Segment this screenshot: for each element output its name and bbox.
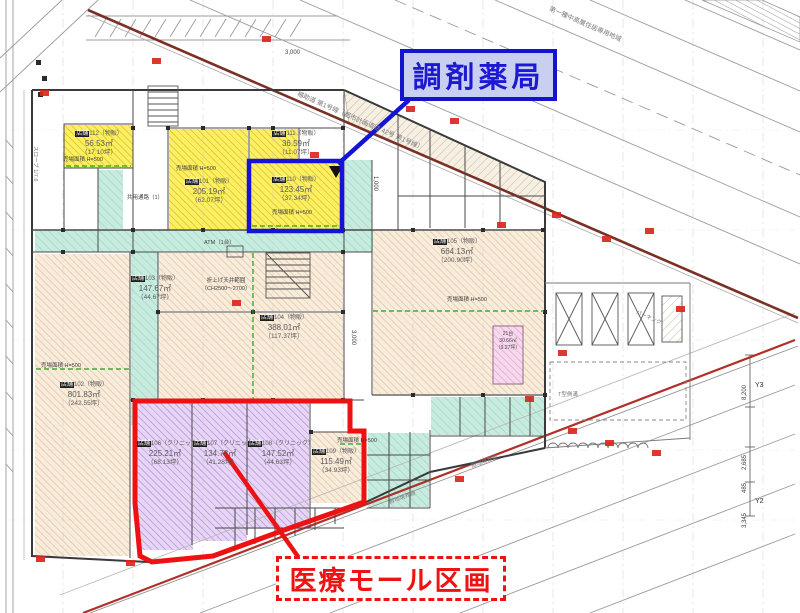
zone-store-103: [159, 253, 343, 311]
zone-backrooms-east: [431, 397, 544, 435]
medical-mall-callout: 医療モール区画: [276, 556, 506, 601]
dim-8200: 8,200: [742, 385, 748, 400]
red-tag: [552, 212, 561, 218]
red-tag: [406, 106, 415, 112]
red-tag: [605, 440, 614, 446]
red-tag: [126, 560, 135, 566]
dim-3000-top: 3,000: [285, 50, 300, 56]
dim-3345: 3,345: [742, 513, 748, 528]
corridor-note: 共用通路（1）: [127, 193, 163, 201]
dim-3000-mid: 3,000: [350, 330, 356, 345]
red-tag: [262, 36, 271, 42]
gridline-y2-label: Y2: [755, 498, 764, 505]
zone-store-101: [169, 129, 248, 229]
red-tag: [602, 236, 611, 242]
red-tag: [525, 396, 534, 402]
parking-note: パーキング: [635, 308, 663, 326]
red-tag: [497, 222, 506, 228]
boundary-note: 敷地境界線: [470, 453, 499, 470]
red-tag: [36, 556, 45, 562]
zone-store-112: [64, 125, 133, 168]
dim-1000: 1,000: [372, 176, 378, 191]
pharmacy-callout: 調剤薬局: [400, 49, 557, 101]
zone-store-106-clinic: [137, 403, 193, 550]
red-tag: [310, 152, 319, 158]
zone-corridor-entrance: [345, 160, 372, 230]
red-tag: [676, 306, 685, 312]
zone-backrooms-south: [368, 433, 429, 507]
red-tag: [558, 350, 567, 356]
site-floor-plan: 店舗112（物販） 56.53㎡ （17.10坪） 店舗101（物販） 205.…: [0, 0, 800, 613]
zone-store-104: [159, 313, 343, 399]
red-tag: [450, 118, 459, 124]
red-tag: [568, 428, 577, 434]
dim-485: 485: [742, 483, 748, 493]
zone-bike-storage: [493, 326, 523, 384]
zone-corridor-vertical: [131, 252, 158, 425]
red-tag: [232, 300, 241, 306]
gutter-note: T型側溝: [558, 390, 578, 398]
zone-corridor-horizontal: [35, 230, 373, 252]
red-tag: [652, 450, 661, 456]
red-tag: [455, 476, 464, 482]
red-tag: [152, 58, 161, 64]
zone-store-111: [250, 129, 298, 159]
medical-mall-callout-label: 医療モール区画: [290, 559, 493, 598]
red-tag: [645, 228, 654, 234]
red-tag: [40, 90, 49, 96]
zone-store-107-clinic: [193, 403, 247, 541]
zone-store-108-clinic: [247, 403, 309, 529]
zoning-note: 第一種中高層住居専用地域: [548, 3, 624, 43]
zone-store-102: [35, 254, 130, 556]
gridline-y3-label: Y3: [755, 382, 764, 389]
pharmacy-callout-label: 調剤薬局: [412, 54, 544, 96]
zone-store-110-pharmacy: [250, 162, 342, 230]
dim-2685: 2,685: [742, 455, 748, 470]
zone-store-109: [311, 432, 363, 503]
slope-note: スロープ 1/7.6: [32, 146, 40, 181]
zone-corridor-west: [98, 170, 123, 229]
